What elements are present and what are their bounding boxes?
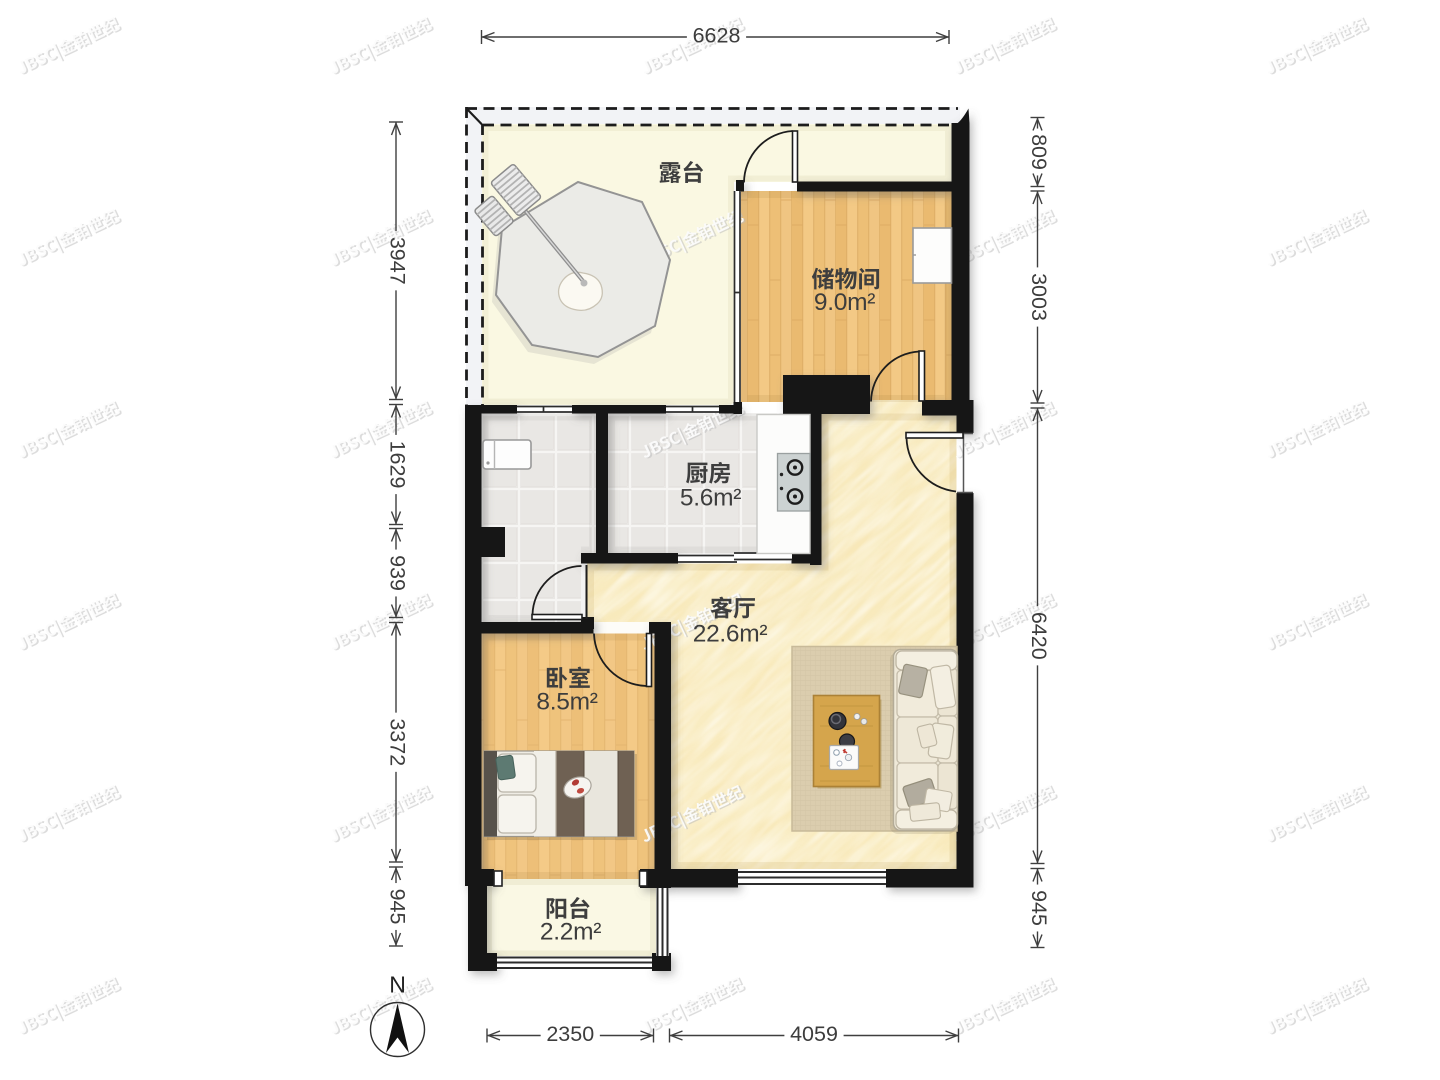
svg-text:3947: 3947 bbox=[386, 237, 410, 285]
svg-text:6628: 6628 bbox=[693, 24, 741, 48]
svg-text:4059: 4059 bbox=[790, 1022, 838, 1046]
svg-text:9.0m²: 9.0m² bbox=[814, 289, 875, 316]
svg-text:2350: 2350 bbox=[546, 1022, 594, 1046]
svg-text:8.5m²: 8.5m² bbox=[536, 689, 597, 716]
svg-text:809: 809 bbox=[1027, 134, 1051, 170]
svg-text:3003: 3003 bbox=[1027, 273, 1051, 321]
svg-text:5.6m²: 5.6m² bbox=[680, 485, 741, 512]
svg-text:945: 945 bbox=[1027, 890, 1051, 926]
svg-text:6420: 6420 bbox=[1027, 612, 1051, 660]
svg-text:945: 945 bbox=[386, 889, 410, 925]
svg-text:2.2m²: 2.2m² bbox=[540, 919, 601, 946]
svg-text:3372: 3372 bbox=[386, 718, 410, 766]
svg-text:N: N bbox=[389, 972, 406, 998]
svg-text:1629: 1629 bbox=[386, 441, 410, 489]
svg-text:22.6m²: 22.6m² bbox=[693, 621, 768, 648]
svg-text:939: 939 bbox=[386, 555, 410, 591]
